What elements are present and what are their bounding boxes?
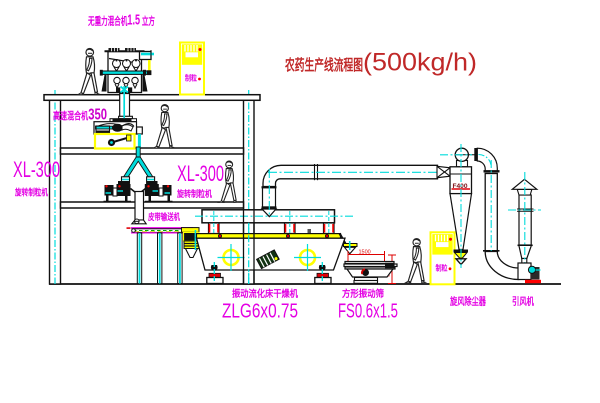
- svg-text:XL-300: XL-300: [177, 161, 224, 186]
- svg-text:ZLG6x0.75: ZLG6x0.75: [222, 301, 298, 323]
- svg-text:方形振动筛: 方形振动筛: [342, 288, 384, 300]
- svg-text:(500kg/h): (500kg/h): [363, 49, 477, 77]
- svg-text:1500: 1500: [359, 250, 371, 256]
- svg-text:旋转制粒机: 旋转制粒机: [14, 187, 48, 198]
- svg-text:旋风除尘器: 旋风除尘器: [449, 295, 486, 308]
- svg-text:XL-300: XL-300: [13, 157, 60, 182]
- svg-text:无重力混合机1.5 立方: 无重力混合机1.5 立方: [87, 13, 155, 29]
- svg-text:农药生产线流程图: 农药生产线流程图: [284, 56, 363, 74]
- svg-text:引风机: 引风机: [512, 295, 534, 308]
- svg-text:皮带输送机: 皮带输送机: [147, 211, 180, 222]
- svg-text:FS0.6x1.5: FS0.6x1.5: [338, 301, 398, 323]
- svg-text:振动流化床干燥机: 振动流化床干燥机: [232, 288, 298, 300]
- svg-text:旋转制粒机: 旋转制粒机: [176, 188, 212, 199]
